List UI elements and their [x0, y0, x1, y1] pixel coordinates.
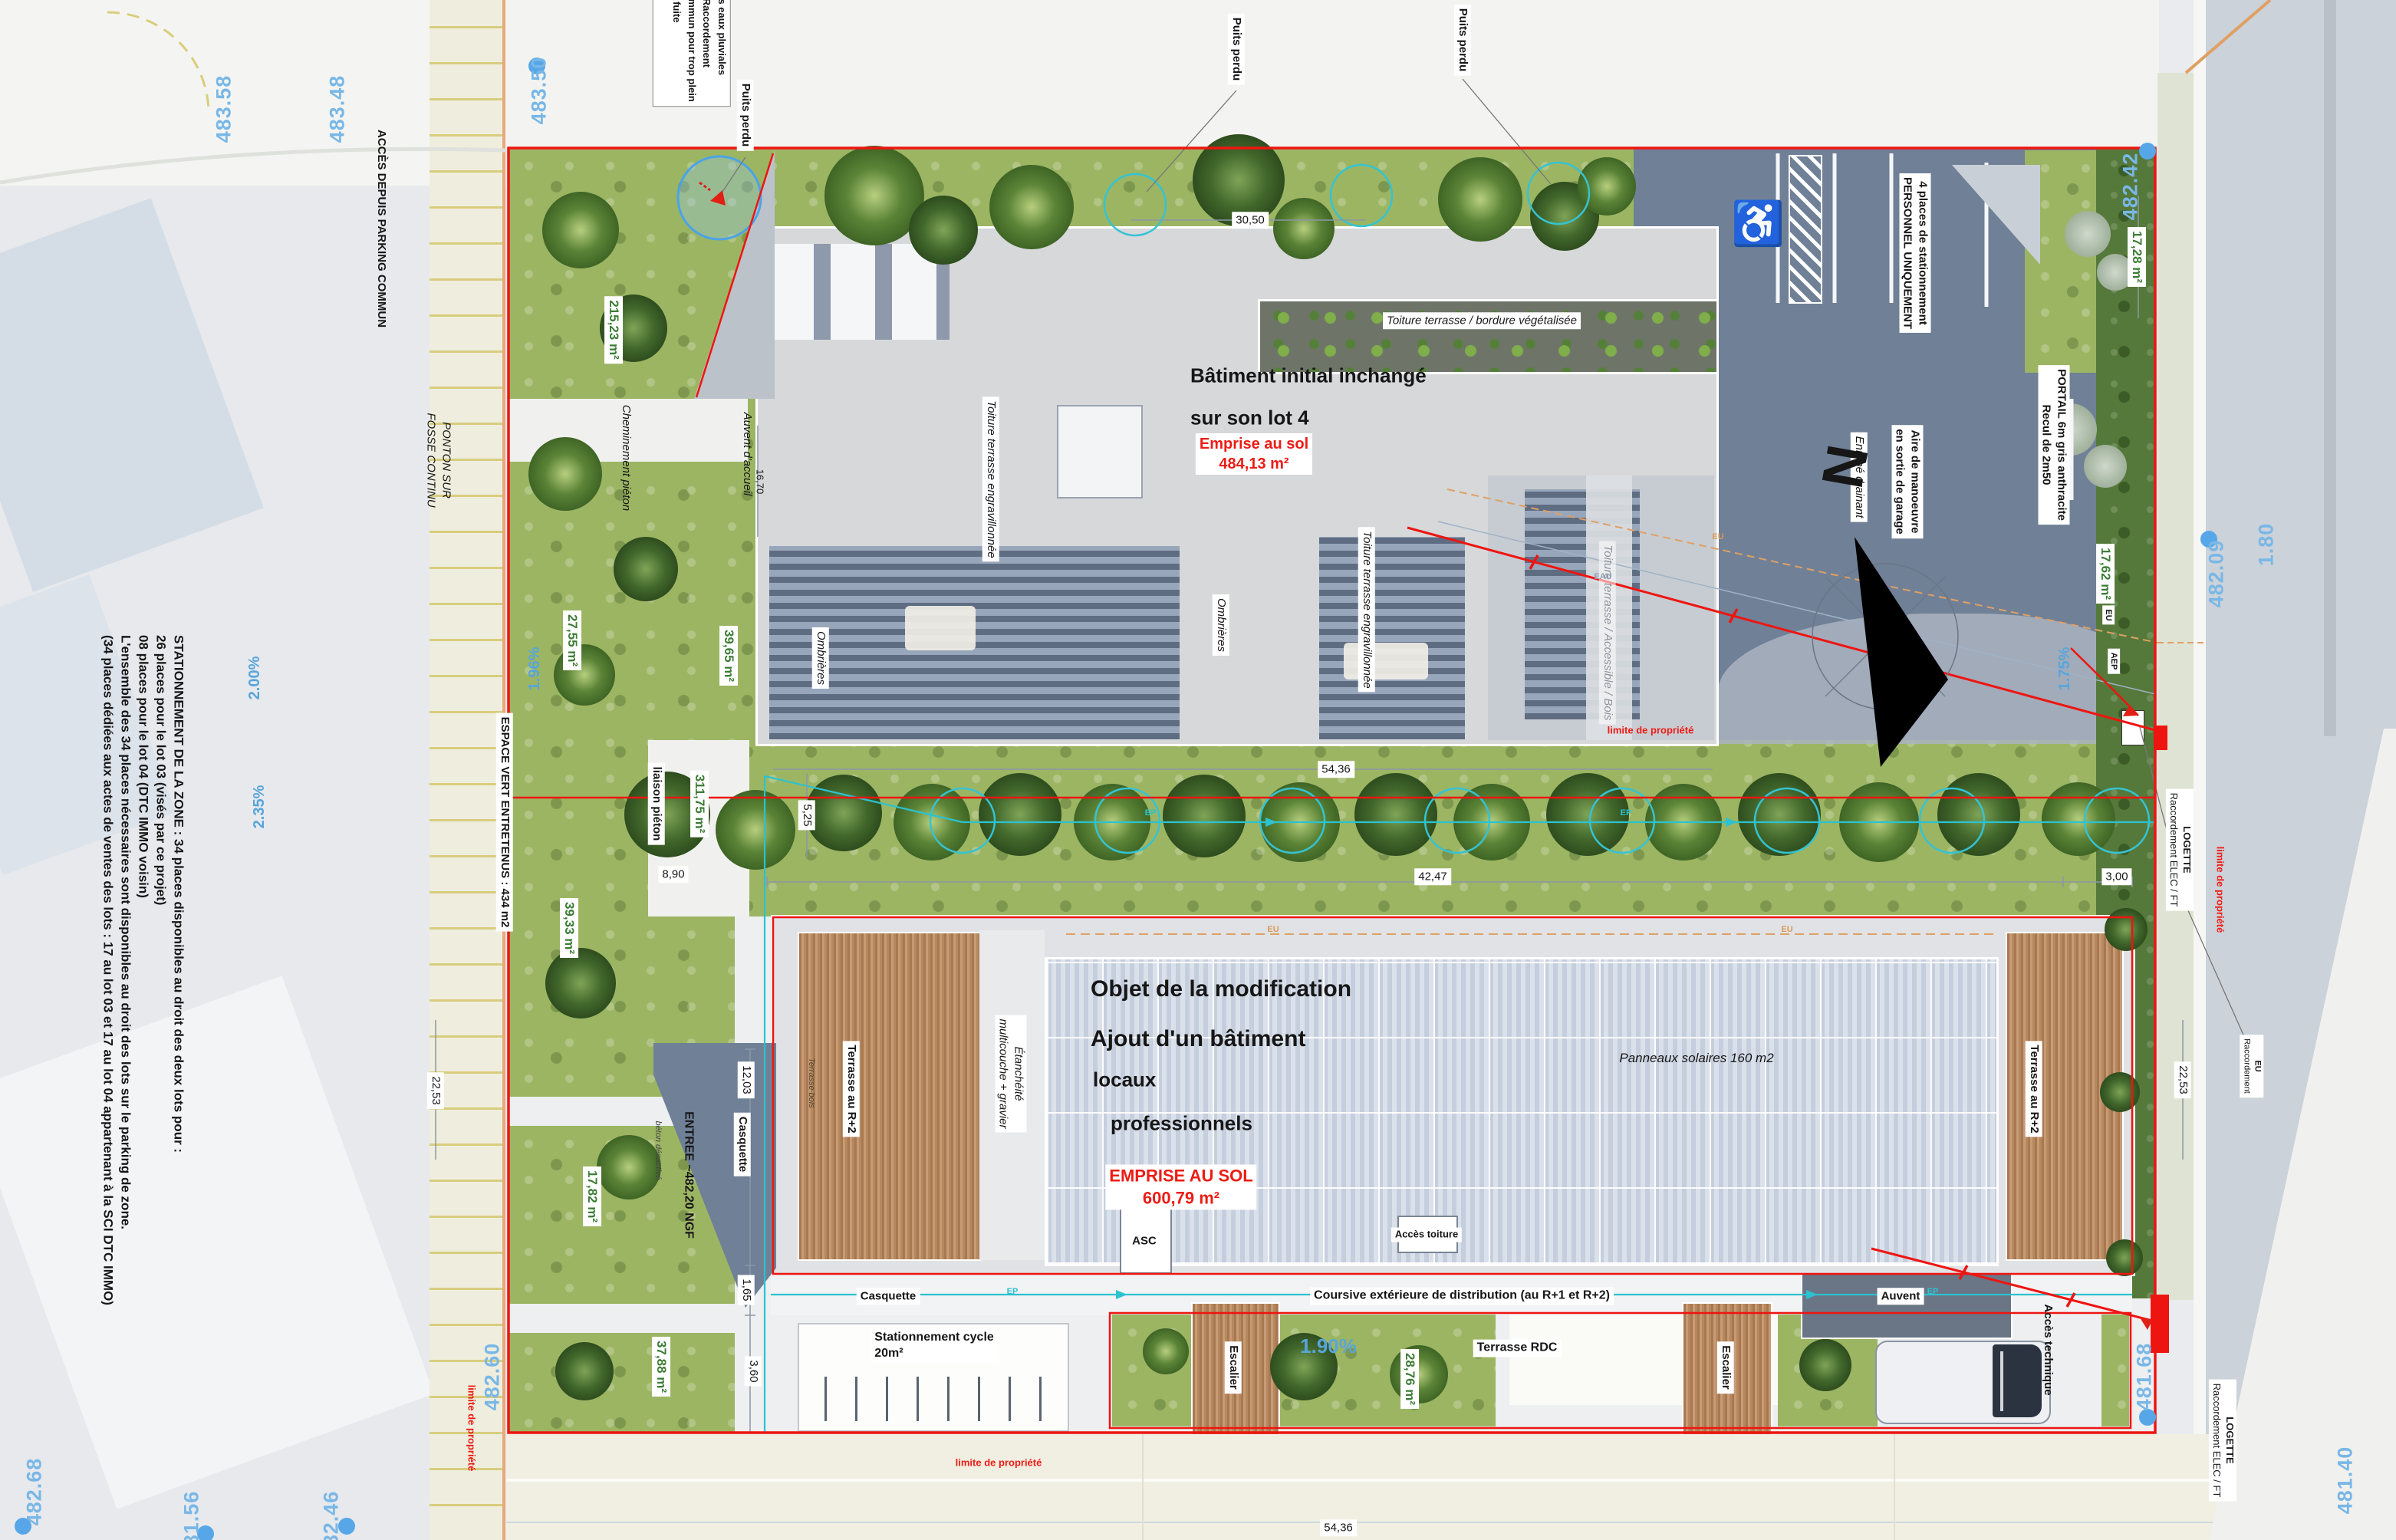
storm-note-line: des eaux pluviales	[714, 0, 729, 102]
dimension-label: 1,65	[738, 1275, 755, 1305]
gravel-roof-label: Toiture terrasse engravillonnée	[1358, 527, 1375, 692]
terrace-r2-label: Terrasse au R+2	[843, 1041, 860, 1137]
parking-note-line: STATIONNEMENT DE LA ZONE : 34 places dis…	[170, 635, 188, 1305]
dimension-label: 8,90	[658, 866, 688, 883]
staff-parking-line: PERSONNEL UNIQUEMENT	[1901, 177, 1916, 329]
ep-tag: EP	[1927, 1286, 1939, 1297]
entrance-label: ENTREE ~482,20 NGF	[680, 1111, 696, 1239]
staff-parking-label: 4 places de stationnement PERSONNEL UNIQ…	[1900, 173, 1931, 333]
area-label: 37,88 m²	[652, 1337, 670, 1397]
dimension-label: 16,70	[753, 469, 766, 495]
roof-access-label: Accès toiture	[1391, 1228, 1462, 1242]
logette-line: Raccordement ELEC / FT	[2210, 1384, 2223, 1498]
property-limit-label: limite de propriété	[1608, 725, 1694, 738]
sidewalk-strip	[430, 0, 505, 1540]
casquette-label: Casquette	[734, 1113, 751, 1176]
sidewalk-hatch	[430, 0, 505, 1540]
property-limit-label: limite de propriété	[465, 1385, 478, 1472]
maneuver-line: Aire de manoeuvre	[1907, 429, 1923, 535]
technical-access-label: Accès technique	[2040, 1304, 2055, 1395]
area-label: 39,33 m²	[560, 898, 578, 958]
site-plan-canvas: { "plan": { "notes": { "storm_lines": ["…	[0, 0, 2396, 1540]
ep-tag: EP	[1007, 1286, 1019, 1297]
parking-note-line: (34 places dédiées aux actes de ventes d…	[100, 635, 117, 1305]
area-label: 311,75 m²	[690, 771, 709, 837]
waterproofing-line: multicouche + gravier	[996, 1019, 1012, 1129]
area-label: 28,76 m²	[1400, 1349, 1419, 1409]
eu-tag: EU	[1781, 924, 1792, 935]
cycle-line: 20m²	[874, 1346, 994, 1362]
parking-note-line: L'ensemble des 34 places nécessaires son…	[117, 635, 135, 1305]
building1-green-roof-strip	[1258, 299, 1719, 374]
building1-title-line2: sur son lot 4	[1190, 406, 1309, 430]
property-limit-label: limite de propriété	[956, 1457, 1042, 1470]
puits-perdu-label: Puits perdu	[737, 80, 754, 151]
portail-line: PORTAIL 6m gris anthracite	[2054, 369, 2069, 521]
ponton-label: PONTON SUR FOSSE CONTINU	[424, 413, 454, 507]
parking-note-line: 08 places pour le lot 04 (DTC IMMO voisi…	[135, 635, 153, 1305]
puits-perdu-label: Puits perdu	[1228, 14, 1245, 85]
slope-label: 1.75%	[2055, 647, 2075, 691]
footprint-line: 600,79 m²	[1109, 1187, 1252, 1209]
area-label: 17,82 m²	[583, 1167, 601, 1226]
dimension-label: 54,36	[1320, 1519, 1357, 1536]
building1-dark-block	[769, 244, 950, 340]
spot-level: 481.40	[2332, 1446, 2358, 1515]
eu-tag: EU	[1267, 924, 1279, 935]
ep-tag: EP	[1621, 808, 1632, 818]
area-label: 39,65 m²	[719, 626, 738, 686]
eu-tag: EU	[1712, 531, 1723, 542]
waterproofing-line: Étanchéité	[1011, 1019, 1026, 1129]
solar-panels-label: Panneaux solaires 160 m2	[1619, 1050, 1773, 1067]
eau-tag: EAU	[1594, 571, 1611, 582]
portail-label: PORTAIL 6m gris anthracite Recul de 2m50	[2039, 365, 2070, 525]
spot-level: 482.68	[21, 1458, 48, 1526]
dimension-label: 30,50	[1232, 212, 1269, 229]
parking-zone-note: STATIONNEMENT DE LA ZONE : 34 places dis…	[100, 635, 188, 1305]
spot-level: 481.68	[2131, 1343, 2157, 1411]
cycle-parking-label: Stationnement cycle 20m²	[871, 1329, 998, 1363]
building2-terrace-wood-left	[798, 932, 981, 1261]
verge-right	[2157, 73, 2196, 1300]
top-road-band	[506, 0, 2159, 148]
building2-title-line1: Objet de la modification	[1091, 976, 1351, 1002]
elevator-label: ASC	[1128, 1232, 1160, 1249]
liaison-pieton-label: liaison piéton	[648, 763, 665, 845]
dimension-label: 12,03	[738, 1061, 755, 1098]
espace-vert-label: ESPACE VERT ENTRETENUS : 434 m2	[496, 713, 513, 932]
building1-skylight	[1057, 405, 1143, 499]
coursive-label: Coursive extérieure de distribution (au …	[1310, 1288, 1614, 1305]
dimension-label: 22,53	[2174, 1061, 2191, 1098]
cycle-line: Stationnement cycle	[874, 1330, 994, 1346]
parking-note-line: 26 places pour le lot 03 (visés par ce p…	[153, 635, 170, 1305]
building1-table-2	[1344, 643, 1428, 680]
storm-note-line: commun pour trop plein	[684, 0, 699, 102]
maneuver-area-label: Aire de manoeuvre en sortie de garage	[1892, 425, 1924, 538]
logette-line: Raccordement ELEC / FT	[2167, 793, 2180, 907]
van-cab	[1993, 1344, 2042, 1417]
spot-level: 482.09	[2203, 540, 2230, 608]
building2-title-line2: Ajout d'un bâtiment	[1091, 1026, 1305, 1052]
green-roof-label: Toiture terrasse / bordure végétalisée	[1383, 312, 1581, 329]
auvent-canopy	[1801, 1273, 2013, 1339]
maneuver-line: en sortie de garage	[1893, 429, 1908, 535]
terrace-wood-label: Terrasse bois	[806, 1058, 817, 1108]
building2-terrace-wood-right	[2006, 932, 2124, 1261]
ponton-line: PONTON SUR	[439, 413, 454, 507]
puits-perdu-label: Puits perdu	[1454, 5, 1471, 76]
area-label: 17,28 m²	[2128, 227, 2146, 287]
terrace-rdc-label: Terrasse RDC	[1473, 1340, 1562, 1357]
spot-level: 482.42	[2117, 153, 2144, 221]
eu-connection-line: EU	[2252, 1038, 2263, 1094]
road-right	[2206, 0, 2396, 1540]
building1-footprint-label: Emprise au sol 484,13 m²	[1196, 433, 1312, 475]
bottom-pavement-band	[506, 1434, 2396, 1540]
paving-label: béton désactivé	[653, 1120, 663, 1180]
area-label: 215,23 m²	[604, 296, 623, 364]
eu-tag: EU	[2102, 605, 2115, 624]
footprint-line: EMPRISE AU SOL	[1109, 1165, 1252, 1187]
storm-note-line: e. Raccordement	[699, 0, 715, 102]
terrace-r2-label: Terrasse au R+2	[2026, 1041, 2042, 1137]
road-right-stripe	[2324, 0, 2336, 736]
property-limit-label: limite de propriété	[2213, 847, 2227, 933]
casquette-label: Casquette	[857, 1288, 920, 1305]
spot-level: 483.50	[525, 57, 552, 125]
ponton-line: FOSSE CONTINU	[424, 413, 439, 507]
slope-label: 2.00%	[245, 656, 265, 700]
spot-level: 1.80	[2253, 523, 2279, 567]
red-marker-right-mid	[2154, 726, 2167, 750]
dimension-label: 5,25	[798, 800, 815, 830]
footprint-line: 484,13 m²	[1200, 454, 1308, 474]
garden-box-1	[1112, 1315, 1496, 1426]
slope-label: 1.90%	[1300, 1334, 1357, 1360]
dimension-label: 42,47	[1414, 868, 1451, 885]
dimension-label: 3,60	[745, 1356, 762, 1386]
stair-label: Escalier	[1717, 1341, 1734, 1394]
spot-level: 482.46	[318, 1491, 344, 1540]
dimension-label: 54,36	[1318, 761, 1354, 778]
parking-hatch-strip	[1789, 155, 1822, 304]
storm-water-note: des eaux pluviales e. Raccordement commu…	[653, 0, 731, 107]
spot-level: 483.58	[210, 75, 237, 143]
area-label: 17,62 m²	[2096, 544, 2115, 604]
portail-line: Recul de 2m50	[2039, 369, 2055, 521]
stair-label: Escalier	[1225, 1341, 1242, 1394]
eu-connection-label: EU Raccordement	[2240, 1035, 2264, 1097]
building1-title-line1: Bâtiment initial inchangé	[1190, 364, 1427, 388]
cycle-racks	[824, 1377, 1043, 1421]
dimension-label: 22,53	[427, 1072, 444, 1109]
accessible-roof-label: Toiture terrasse / Accessible / Bois	[1599, 541, 1616, 725]
ombrieres-label: Ombrières	[812, 627, 829, 689]
cheminement-pieton-label: Cheminement piéton	[618, 405, 634, 511]
logette-line: LOGETTE	[2223, 1384, 2236, 1498]
logette-label: LOGETTE Raccordement ELEC / FT	[2209, 1380, 2236, 1502]
footprint-line: Emprise au sol	[1200, 434, 1308, 454]
building2-subtitle-line2: professionnels	[1111, 1112, 1252, 1136]
eu-connection-white-box	[2121, 710, 2144, 745]
curb-right	[2194, 0, 2206, 1540]
aep-tag: AEP	[2108, 649, 2120, 674]
building2-footprint-label: EMPRISE AU SOL 600,79 m²	[1105, 1164, 1256, 1209]
waterproofing-label: Étanchéité multicouche + gravier	[996, 1015, 1027, 1133]
ep-tag: EP	[1145, 808, 1157, 818]
building1-ombriere-deck-2	[1319, 537, 1465, 739]
access-road-label: ACCÈS DEPUIS PARKING COMMUN	[374, 130, 389, 327]
spot-level: 482.60	[479, 1343, 505, 1411]
slope-label: 2.35%	[249, 785, 269, 829]
dimension-label: 3,00	[2101, 868, 2131, 885]
area-label: 27,55 m²	[563, 610, 581, 670]
spot-level: 483.48	[324, 75, 351, 143]
handicap-icon: ♿	[1731, 196, 1785, 252]
canopy-label: Auvent	[1878, 1288, 1924, 1305]
gravel-roof-label: Toiture terrasse engravillonnée	[982, 397, 999, 561]
storm-note-line: de fuite	[670, 0, 685, 102]
ombrieres-label: Ombrières	[1213, 594, 1229, 656]
staff-parking-line: 4 places de stationnement	[1915, 177, 1930, 329]
spot-level: 481.56	[178, 1491, 205, 1540]
eu-connection-line: Raccordement	[2241, 1038, 2252, 1094]
logette-line: LOGETTE	[2180, 793, 2193, 907]
grass-sw-3	[508, 1333, 735, 1433]
logette-label: LOGETTE Raccordement ELEC / FT	[2166, 789, 2194, 911]
building1-table-1	[905, 606, 976, 650]
storm-note-line: re	[654, 0, 670, 102]
building2-subtitle-line1: locaux	[1093, 1068, 1156, 1092]
garden-box-3	[2101, 1315, 2129, 1426]
slope-label: 1.96%	[525, 647, 545, 691]
